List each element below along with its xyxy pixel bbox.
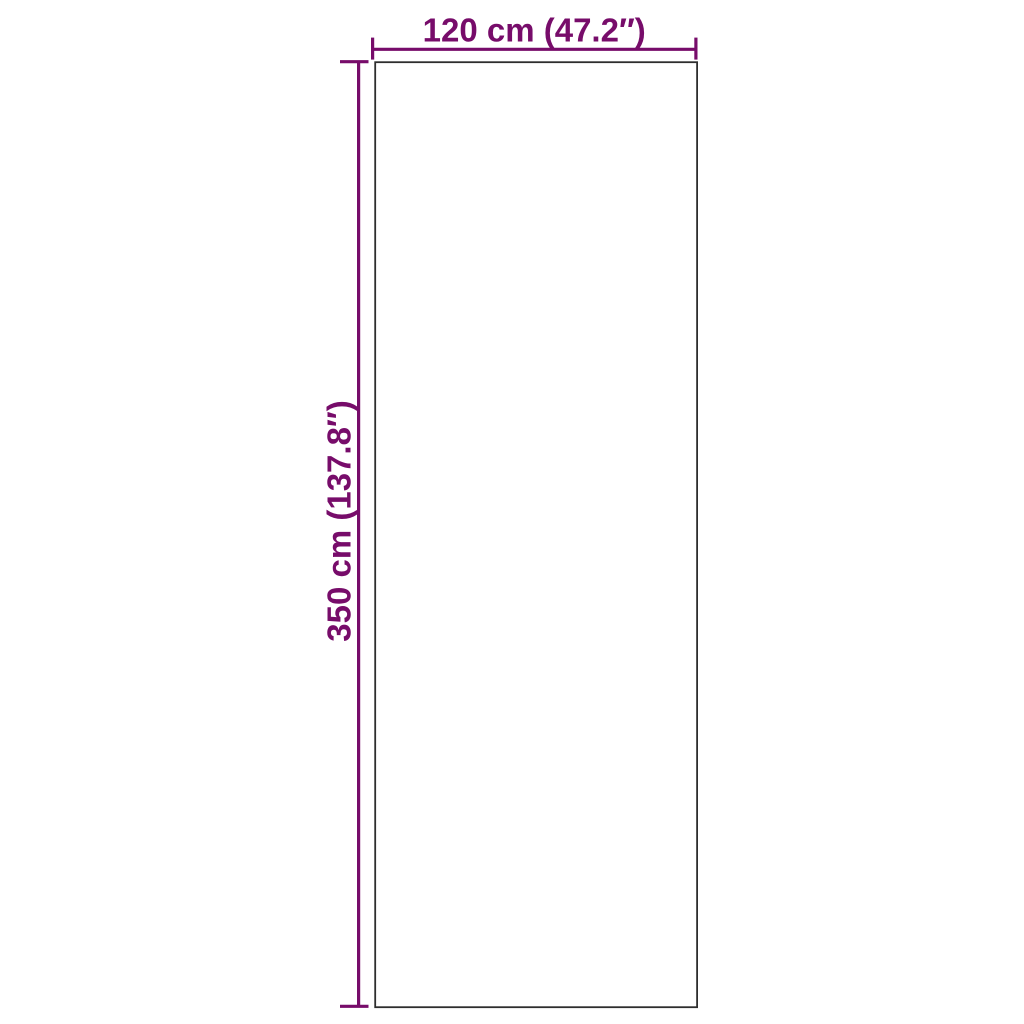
svg-text:350 cm (137.8″): 350 cm (137.8″) [321, 400, 358, 641]
svg-text:120 cm (47.2″): 120 cm (47.2″) [423, 12, 646, 49]
